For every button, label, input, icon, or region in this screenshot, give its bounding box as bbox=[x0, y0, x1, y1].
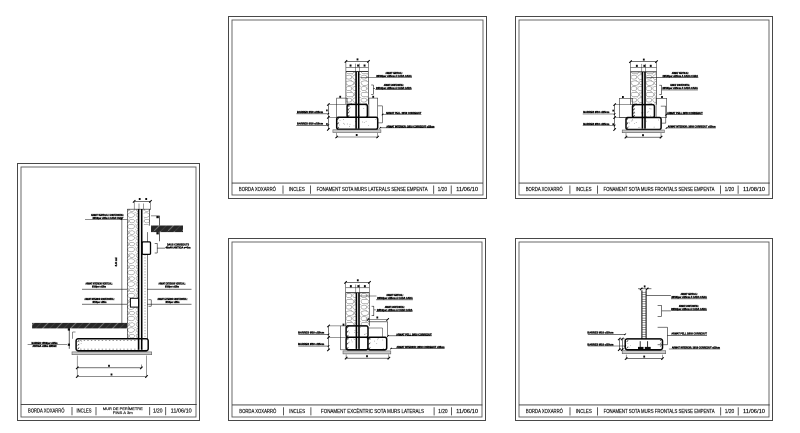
svg-text:Ø10/per c/25m: Ø10/per c/25m bbox=[165, 285, 179, 288]
svg-text:BARRES Ø10 c/25cm: BARRES Ø10 c/25cm bbox=[297, 111, 323, 114]
svg-text:BARRES Ø10 c/25cm: BARRES Ø10 c/25cm bbox=[298, 332, 324, 335]
svg-text:ARMAT INTERIOR HORITZONTAL:: ARMAT INTERIOR HORITZONTAL: bbox=[85, 298, 115, 301]
svg-text:BORDA XOXARRÓ: BORDA XOXARRÓ bbox=[239, 186, 276, 193]
svg-text:ARMAT HORITZONTAL:: ARMAT HORITZONTAL: bbox=[670, 84, 690, 87]
svg-text:FONAMENT SOTA MURS FRONTALS SE: FONAMENT SOTA MURS FRONTALS SENSE EMPENT… bbox=[604, 187, 715, 193]
svg-text:BORDA XOXARRÓ: BORDA XOXARRÓ bbox=[28, 408, 65, 415]
svg-text:ARMAT VERTICAL I HORITZONTAL:: ARMAT VERTICAL I HORITZONTAL: bbox=[91, 214, 124, 217]
svg-text:11/06/10: 11/06/10 bbox=[171, 409, 192, 415]
svg-text:ARMAT VERTICAL:: ARMAT VERTICAL: bbox=[386, 72, 403, 75]
svg-text:ARMAT HORITZONTAL:: ARMAT HORITZONTAL: bbox=[384, 84, 404, 87]
svg-text:FONAMENT SOTA MURS FRONTALS SE: FONAMENT SOTA MURS FRONTALS SENSE EMPENT… bbox=[604, 409, 715, 415]
svg-text:1/20: 1/20 bbox=[725, 187, 735, 193]
svg-text:ARMAT EXTERIOR HORITZONTAL:: ARMAT EXTERIOR HORITZONTAL: bbox=[158, 298, 188, 301]
svg-text:ARMAT VERTICAL:: ARMAT VERTICAL: bbox=[672, 72, 689, 75]
svg-text:BORDA XOXARRÓ: BORDA XOXARRÓ bbox=[526, 186, 563, 193]
svg-text:BORDA XOXARRÓ: BORDA XOXARRÓ bbox=[526, 408, 563, 415]
svg-text:ARMAT EXTERIOR VERTICAL:: ARMAT EXTERIOR VERTICAL: bbox=[159, 282, 186, 285]
svg-text:BARRES Ø10 c/25cm: BARRES Ø10 c/25cm bbox=[583, 111, 609, 114]
svg-text:1/20: 1/20 bbox=[153, 409, 163, 415]
svg-text:ANTIGA c/25m 2Ø10/2: ANTIGA c/25m 2Ø10/2 bbox=[33, 345, 58, 348]
svg-text:ARMAT HORITZONTAL:: ARMAT HORITZONTAL: bbox=[679, 305, 699, 308]
svg-text:INCLES: INCLES bbox=[576, 409, 592, 415]
svg-text:1/20: 1/20 bbox=[725, 409, 735, 415]
svg-text:BARRES Ø10 c/25cm: BARRES Ø10 c/25cm bbox=[298, 343, 324, 346]
svg-text:ARMAT INTERIOR VERTICAL:: ARMAT INTERIOR VERTICAL: bbox=[86, 282, 113, 285]
svg-text:11/06/10: 11/06/10 bbox=[743, 409, 765, 415]
svg-text:DAUS CORREGUTS: DAUS CORREGUTS bbox=[167, 244, 189, 247]
svg-text:ARMAT HORITZONTAL:: ARMAT HORITZONTAL: bbox=[385, 306, 405, 309]
svg-text:Ø10/per c/25m: Ø10/per c/25m bbox=[93, 301, 107, 304]
svg-text:FONAMENT SOTA MURS LATERALS SE: FONAMENT SOTA MURS LATERALS SENSE EMPENT… bbox=[317, 187, 428, 193]
svg-text:INCLES: INCLES bbox=[289, 187, 305, 193]
svg-text:FONAMENT EXCÈNTRIC SOTA MURS L: FONAMENT EXCÈNTRIC SOTA MURS LATERALS bbox=[321, 408, 424, 415]
svg-text:Ø10/per c/25m: Ø10/per c/25m bbox=[166, 301, 180, 304]
svg-text:11/08/10: 11/08/10 bbox=[743, 187, 765, 193]
svg-text:INCLES: INCLES bbox=[289, 409, 305, 415]
svg-text:ARMAT VERTICAL:: ARMAT VERTICAL: bbox=[386, 294, 403, 297]
svg-text:Ø10/per c/25m: Ø10/per c/25m bbox=[92, 285, 106, 288]
svg-text:11/06/10: 11/06/10 bbox=[456, 187, 478, 193]
svg-text:BORDA XOXARRÓ: BORDA XOXARRÓ bbox=[239, 408, 276, 415]
svg-text:INCLES: INCLES bbox=[77, 409, 93, 415]
svg-text:ARMAT VERTICAL:: ARMAT VERTICAL: bbox=[681, 293, 698, 296]
svg-text:FINS A 3m: FINS A 3m bbox=[113, 410, 134, 415]
svg-text:3.0 ml: 3.0 ml bbox=[114, 257, 118, 266]
svg-text:11/06/10: 11/06/10 bbox=[456, 409, 478, 415]
svg-text:40x40 ANTIGA e=3m: 40x40 ANTIGA e=3m bbox=[166, 247, 191, 250]
svg-text:1/20: 1/20 bbox=[438, 409, 448, 415]
svg-text:INCLES: INCLES bbox=[576, 187, 592, 193]
svg-text:1/20: 1/20 bbox=[438, 187, 448, 193]
